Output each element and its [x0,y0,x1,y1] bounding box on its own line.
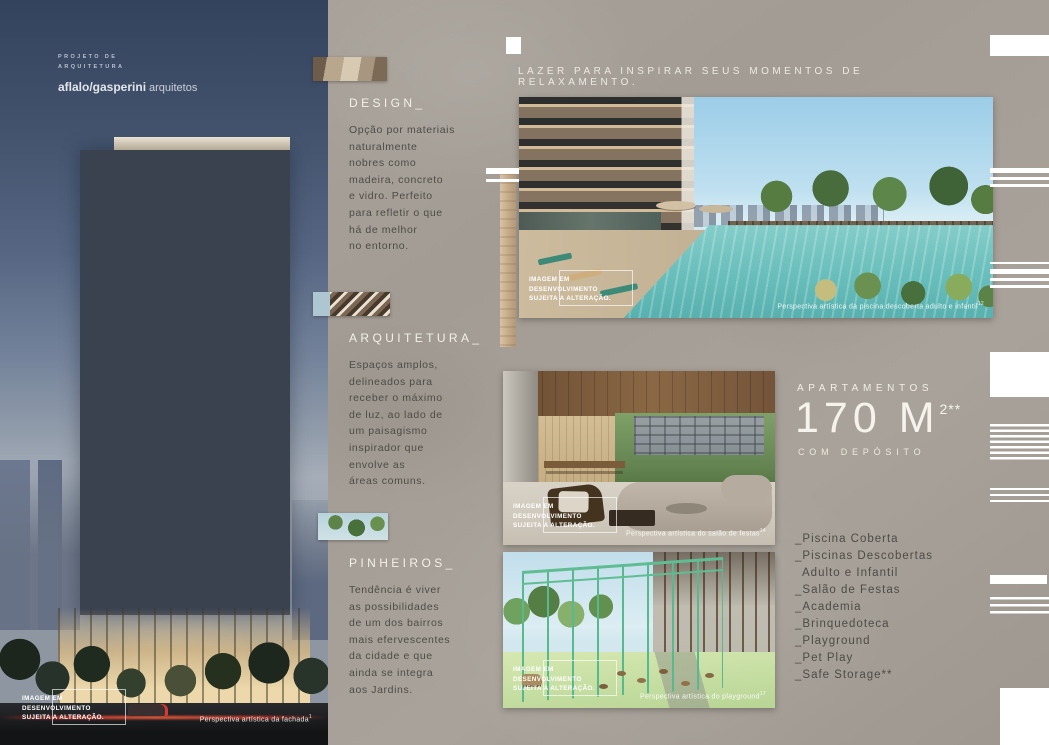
pinheiros-thumbnail-image [318,513,388,540]
facade-render-image: PROJETO DE ARQUITETURA aflalo/gasperinia… [0,0,328,745]
section-title: PINHEIROS_ [349,556,481,570]
architecture-thumbnail-image [313,292,390,316]
barcode-block [1000,688,1049,745]
apartment-area: 170 M2** [795,394,961,443]
image-disclaimer: IMAGEM EM DESENVOLVIMENTO SUJEITA A ALTE… [529,275,611,304]
party-room-caption: Perspectiva artística do salão de festas… [626,528,766,537]
barcode-lines [990,597,1049,615]
amenity-item: _Salão de Festas [795,582,933,599]
amenity-item: _Academia [795,599,933,616]
section-design: DESIGN_ Opção por materiais naturalmente… [349,96,481,255]
party-room-render-image: IMAGEM EM DESENVOLVIMENTO SUJEITA A ALTE… [503,371,775,545]
section-title: ARQUITETURA_ [349,331,481,345]
section-pinheiros: PINHEIROS_ Tendência é viver as possibil… [349,556,481,698]
barcode-block [990,352,1049,397]
pool-umbrella [656,201,696,210]
image-disclaimer: IMAGEM EM DESENVOLVIMENTO SUJEITA A ALTE… [513,665,595,694]
side-table [666,503,707,513]
barcode-lines [990,488,1049,505]
residential-tower [80,150,290,615]
curved-sofa [721,475,773,503]
playground-caption: Perspectiva artística do playground17 [640,691,766,700]
architects-logo: aflalo/gasperiniarquitetos [58,80,197,94]
amenity-item: _Playground [795,633,933,650]
barcode-lines [990,424,1049,462]
barcode-bar [990,575,1047,584]
image-disclaimer: IMAGEM EM DESENVOLVIMENTO SUJEITA A ALTE… [513,502,595,531]
white-square-icon [506,37,521,54]
section-title: DESIGN_ [349,96,481,110]
pool-render-image: IMAGEM EM DESENVOLVIMENTO SUJEITA A ALTE… [519,97,993,318]
stone-wall [634,416,765,454]
section-body: Espaços amplos, delineados para receber … [349,357,481,490]
credit-line: ARQUITETURA [58,62,197,72]
car [128,704,168,716]
wood-slat-wall [538,416,614,489]
amenities-list: _Piscina Coberta _Piscinas Descobertas A… [795,531,933,684]
section-body: Opção por materiais naturalmente nobres … [349,122,481,255]
amenity-item: _Safe Storage** [795,667,933,684]
design-thumbnail-image [313,57,387,81]
barcode-block [990,35,1049,56]
amenity-item: _Piscina Coberta [795,531,933,548]
amenity-item: _Pet Play [795,650,933,667]
amenity-item-continuation: Adulto e Infantil [795,565,933,582]
pool-trees [747,150,993,230]
playground-stools [617,671,626,676]
facade-caption: Perspectiva artística da fachada1 [200,714,312,723]
wood-texture-strip [500,173,516,347]
brochure-spread: PROJETO DE ARQUITETURA aflalo/gasperinia… [0,0,1049,745]
playground-render-image: IMAGEM EM DESENVOLVIMENTO SUJEITA A ALTE… [503,552,775,708]
logo-name: aflalo/gasperini [58,80,146,94]
barcode-lines [486,168,519,186]
amenity-item: _Brinquedoteca [795,616,933,633]
leisure-headline: LAZER PARA INSPIRAR SEUS MOMENTOS DE REL… [518,66,988,88]
image-disclaimer: IMAGEM EM DESENVOLVIMENTO SUJEITA A ALTE… [22,694,104,723]
barcode-lines [990,262,1049,289]
barcode-lines [990,168,1049,188]
apartments-sublabel: COM DEPÓSITO [798,447,925,457]
architecture-credit: PROJETO DE ARQUITETURA aflalo/gasperinia… [58,52,197,94]
dining-table [544,461,626,468]
section-architecture: ARQUITETURA_ Espaços amplos, delineados … [349,331,481,490]
credit-line: PROJETO DE [58,52,197,62]
amenity-item: _Piscinas Descobertas [795,548,933,565]
section-body: Tendência é viver as possibilidades de u… [349,582,481,698]
logo-suffix: arquitetos [149,82,197,94]
pool-caption: Perspectiva artística da piscina descobe… [777,301,984,310]
apartments-label: APARTAMENTOS [797,383,933,394]
